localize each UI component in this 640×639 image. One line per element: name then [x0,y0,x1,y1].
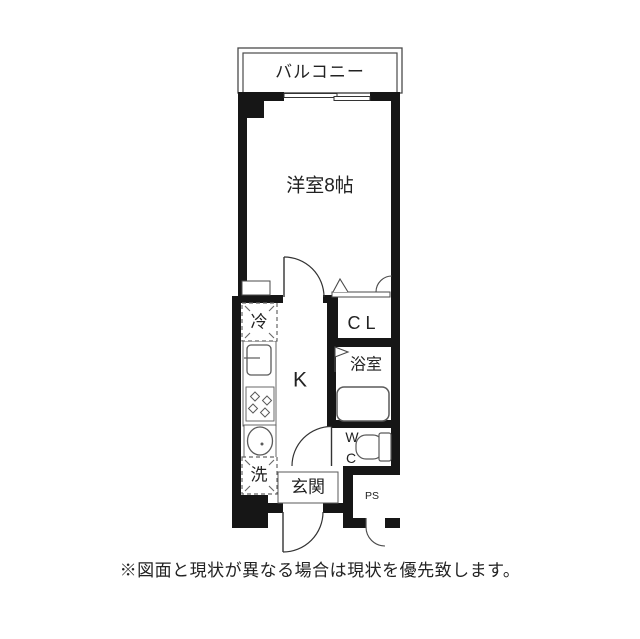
entrance-label: 玄関 [291,478,325,497]
kitchen-label: K [293,369,307,392]
room-bath: 浴室 [335,347,389,421]
wall-room-bottom-left [238,295,283,303]
kitchen-sink [247,345,271,375]
closet-door-fold [333,279,348,292]
closet-door-arc [376,276,392,292]
bathtub [337,387,389,421]
pipe-shaft: PS [365,490,385,546]
floor-plan-page: バルコニー [0,0,640,639]
bath-door-flag-icon [335,347,348,357]
washer-space: 洗 [242,457,277,494]
pipe-shaft-label: PS [365,490,379,502]
washbasin-bowl [248,427,273,455]
wall-closet-bottom [332,338,400,347]
wall-ps-bottom-right [385,518,400,528]
disclaimer-note: ※図面と現状が異なる場合は現状を優先致します。 [0,556,640,581]
wc-door-arc [292,427,332,467]
washbasin-drain-icon [261,443,264,446]
balcony: バルコニー [238,48,402,93]
wc-label-c: C [346,450,356,466]
main-room-label: 洋室8帖 [286,175,354,197]
ps-door-arc [366,527,385,546]
room-door-arc [284,257,324,297]
room-kitchen: K [243,341,307,458]
floor-plan-drawing: バルコニー [0,0,640,639]
closet-doors [332,276,392,297]
wall-block-bottom-left [232,495,268,528]
counter-ledge [242,281,270,295]
stove [246,387,274,421]
ps-door-gap [366,518,385,528]
closet-label: CL [347,313,380,333]
wall-left-upper [238,92,247,302]
refrigerator-space: 冷 [242,303,277,341]
refrigerator-label: 冷 [251,313,268,332]
window-panel-left [284,94,337,98]
window-panel-right [334,97,370,101]
closet-door-track [332,292,390,297]
washer-label: 洗 [251,466,268,485]
front-door-arc [283,512,323,552]
room-western: 洋室8帖 [242,175,354,298]
wall-ps-bottom-left [343,518,366,528]
room-wc: W C [292,427,391,467]
wall-left-lower [232,296,241,496]
balcony-label: バルコニー [275,63,365,82]
wall-right [391,92,400,475]
wall-entrance-bottom-right [323,503,343,513]
toilet-tank-icon [379,433,391,461]
sliding-window [284,94,370,101]
wall-entrance-bottom-left [268,503,283,513]
room-closet: CL [347,313,380,333]
bath-label: 浴室 [350,356,382,374]
